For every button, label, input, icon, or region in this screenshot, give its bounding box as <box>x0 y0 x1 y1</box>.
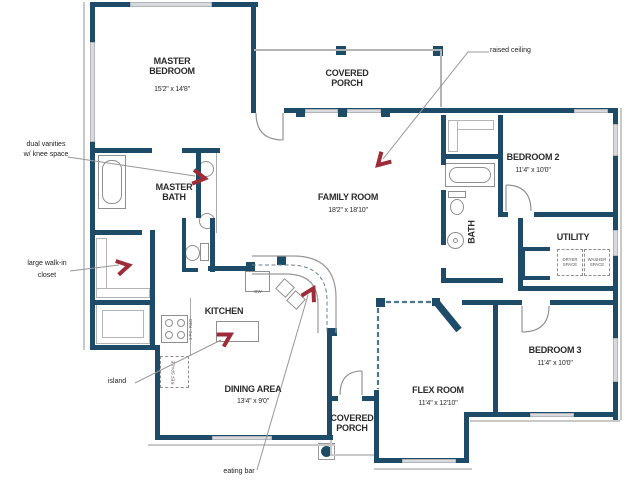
burner <box>177 319 185 327</box>
window-segment <box>347 109 381 113</box>
wall <box>362 396 376 401</box>
room-label-kitchen: KITCHEN <box>196 306 252 316</box>
roof-line <box>330 454 376 456</box>
door-arc <box>506 185 531 211</box>
roof-line <box>148 444 335 446</box>
window-segment <box>130 2 212 7</box>
door-arc <box>522 306 549 332</box>
water-heater-closet <box>521 247 550 280</box>
roof-line <box>620 108 622 420</box>
wall <box>462 300 495 305</box>
burner <box>177 331 185 339</box>
room-label-master-bath: MASTER BATH <box>150 182 198 202</box>
room-label-master-bedroom: MASTER BEDROOM <box>140 56 204 76</box>
window-segment <box>613 230 618 256</box>
door-arc <box>340 371 362 395</box>
bath-tub-basin <box>449 167 491 183</box>
wall <box>534 212 618 217</box>
wall <box>155 345 160 440</box>
wall <box>150 230 155 345</box>
red-arrow-raised-ceiling <box>373 152 391 170</box>
annotation-eating-bar: eating bar <box>212 468 266 476</box>
room-dims-bedroom3: 11'4" x 10'0" <box>515 360 595 367</box>
wall <box>246 262 255 271</box>
annotation-raised-ceiling: raised ceiling <box>490 47 554 55</box>
leader-raised-ceiling <box>383 52 489 159</box>
window-segment <box>90 42 95 142</box>
annotation-dual-vanities-2: w/ knee space <box>10 151 82 159</box>
wall <box>277 256 286 265</box>
wall <box>90 148 152 153</box>
dryer-space: DRYER SPACE <box>557 249 583 276</box>
wall <box>498 115 503 215</box>
room-label-covered-porch-bottom: COVERED PORCH <box>325 413 379 433</box>
flex-cased-opening <box>378 302 432 389</box>
room-label-bedroom2: BEDROOM 2 <box>495 152 571 162</box>
wall <box>327 328 337 336</box>
range-label: 1 PC. R&O <box>186 314 198 344</box>
annotation-dual-vanities: dual vanities <box>12 141 80 149</box>
room-dims-family-room: 18'2" x 18'10" <box>300 207 396 214</box>
window-segment <box>305 109 338 113</box>
dishwasher-label: DW <box>248 289 268 296</box>
room-label-bath: BATH <box>452 210 492 254</box>
roof-line <box>83 2 85 350</box>
vanity-counter-line <box>216 153 217 233</box>
wall <box>498 212 508 217</box>
wall <box>182 268 198 272</box>
wall <box>493 300 498 417</box>
room-dims-flex: 11'4" x 12'10" <box>398 400 478 407</box>
wall <box>441 190 446 245</box>
wall <box>251 2 256 113</box>
wall <box>518 286 618 291</box>
floor-plan: 1 PC. R&O REF SPACE DW DRYER SPACE WASHE… <box>0 0 640 480</box>
wall <box>464 412 469 463</box>
wall <box>493 300 522 305</box>
flex-angled-wall <box>437 303 459 330</box>
wall <box>338 108 347 117</box>
roof-line <box>470 420 620 422</box>
wall <box>182 218 186 272</box>
wall <box>376 298 385 307</box>
window-segment <box>402 459 456 463</box>
roof-line <box>374 468 472 470</box>
window-segment <box>613 338 618 382</box>
wall <box>329 396 338 401</box>
window-segment <box>613 124 618 156</box>
master-tub-basin <box>102 160 122 204</box>
room-label-bedroom3: BEDROOM 3 <box>515 345 595 355</box>
wall <box>182 148 220 153</box>
pantry-shelf <box>102 310 144 338</box>
room-label-family-room: FAMILY ROOM <box>300 192 396 202</box>
room-dims-dining: 13'4" x 9'0" <box>215 398 291 405</box>
wall <box>441 278 503 283</box>
bedroom2-closet-shelf <box>448 120 458 152</box>
leader-dual-vanities <box>68 157 195 176</box>
room-label-covered-porch-top: COVERED PORCH <box>318 68 376 88</box>
door-arc <box>256 113 283 140</box>
wall <box>432 298 440 306</box>
room-dims-bedroom2: 11'4" x 10'0" <box>495 167 571 174</box>
master-toilet-bowl <box>185 245 200 261</box>
wall <box>90 345 160 350</box>
wall <box>336 46 346 55</box>
annotation-walk-in-closet-2: closet <box>18 272 76 280</box>
room-label-utility: UTILITY <box>545 232 601 242</box>
room-label-flex: FLEX ROOM <box>398 385 478 395</box>
washer-space: WASHER SPACE <box>584 249 610 276</box>
wall <box>296 108 305 117</box>
wall <box>433 46 443 56</box>
range <box>161 315 188 343</box>
master-toilet-tank <box>200 243 209 261</box>
wall <box>381 108 390 117</box>
room-dims-master-bedroom: 15'2" x 14'8" <box>132 86 212 93</box>
walkin-closet-shelf <box>96 288 150 298</box>
window-segment <box>530 413 574 417</box>
wall <box>446 154 500 159</box>
island <box>216 321 259 342</box>
burner <box>165 319 173 327</box>
burner <box>165 331 173 339</box>
annotation-island: island <box>100 378 134 386</box>
wall <box>518 218 523 290</box>
red-arrow-walk-in-closet <box>116 259 131 275</box>
room-label-dining: DINING AREA <box>210 384 296 394</box>
wall <box>90 230 142 235</box>
wall <box>90 300 152 305</box>
wall <box>550 300 618 305</box>
annotation-walk-in-closet: large walk-in <box>18 260 76 268</box>
ref-space: REF SPACE <box>160 356 189 388</box>
window-segment <box>212 436 272 440</box>
window-segment <box>574 109 608 113</box>
bath-toilet-tank <box>448 191 466 198</box>
wall <box>210 218 215 272</box>
